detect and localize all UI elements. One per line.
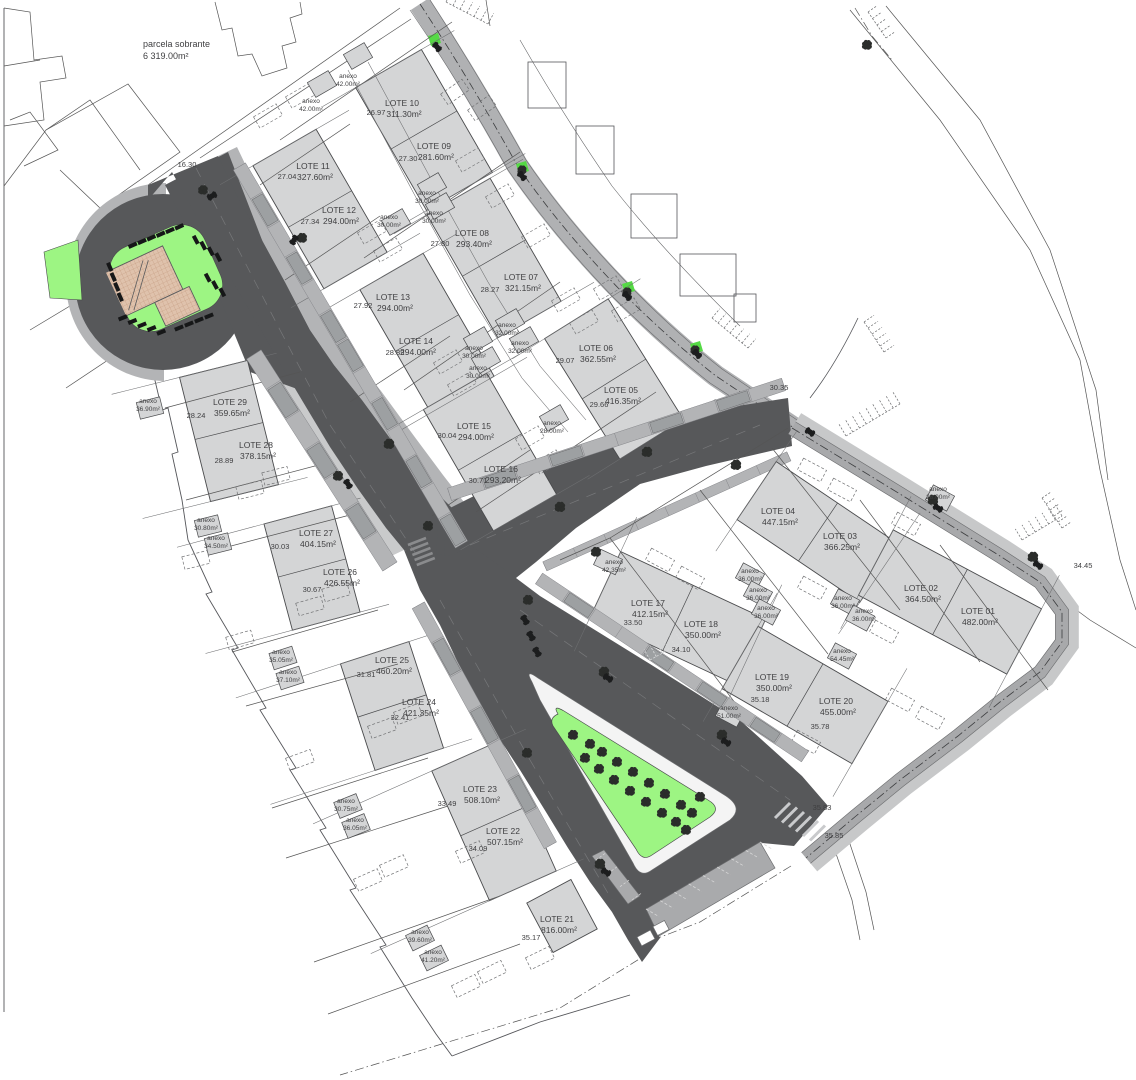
svg-text:anexo: anexo <box>749 587 767 594</box>
svg-text:anexo: anexo <box>511 340 529 347</box>
svg-text:35.83: 35.83 <box>813 803 832 812</box>
svg-text:362.55m²: 362.55m² <box>580 354 616 364</box>
svg-text:366.25m²: 366.25m² <box>824 542 860 552</box>
svg-text:34.09: 34.09 <box>469 844 488 853</box>
svg-text:42.35m²: 42.35m² <box>602 567 627 574</box>
svg-text:LOTE 04: LOTE 04 <box>761 506 795 516</box>
svg-text:anexo: anexo <box>139 398 157 405</box>
svg-text:anexo: anexo <box>339 73 357 80</box>
svg-text:anexo: anexo <box>833 648 851 655</box>
svg-text:anexo: anexo <box>272 649 290 656</box>
svg-text:LOTE 25: LOTE 25 <box>375 655 409 665</box>
svg-text:LOTE 15: LOTE 15 <box>457 421 491 431</box>
svg-text:6 319.00m²: 6 319.00m² <box>143 51 189 61</box>
svg-text:anexo: anexo <box>424 949 442 956</box>
svg-text:anexo: anexo <box>498 322 516 329</box>
svg-text:293.20m²: 293.20m² <box>485 475 521 485</box>
svg-text:31.81: 31.81 <box>357 670 376 679</box>
svg-text:parcela sobrante: parcela sobrante <box>143 39 210 49</box>
svg-text:35.05m²: 35.05m² <box>269 657 294 664</box>
svg-text:33.50: 33.50 <box>624 618 643 627</box>
svg-text:27.04: 27.04 <box>278 172 297 181</box>
svg-text:294.00m²: 294.00m² <box>400 347 436 357</box>
svg-text:36.90m²: 36.90m² <box>136 406 161 413</box>
svg-text:294.00m²: 294.00m² <box>377 303 413 313</box>
svg-text:26.97: 26.97 <box>367 108 386 117</box>
svg-text:anexo: anexo <box>543 420 561 427</box>
svg-text:anexo: anexo <box>465 345 483 352</box>
svg-text:482.00m²: 482.00m² <box>962 617 998 627</box>
svg-text:36.00m²: 36.00m² <box>831 603 856 610</box>
svg-text:36.00m²: 36.00m² <box>738 576 763 583</box>
svg-text:51.00m²: 51.00m² <box>717 713 742 720</box>
svg-text:anexo: anexo <box>741 568 759 575</box>
svg-text:36.00m²: 36.00m² <box>754 613 779 620</box>
svg-text:30.67: 30.67 <box>303 585 322 594</box>
svg-text:416.35m²: 416.35m² <box>605 396 641 406</box>
svg-text:35.18: 35.18 <box>751 695 770 704</box>
svg-text:anexo: anexo <box>720 705 738 712</box>
svg-text:anexo: anexo <box>302 98 320 105</box>
svg-text:35.17: 35.17 <box>522 933 541 942</box>
svg-text:294.00m²: 294.00m² <box>323 216 359 226</box>
svg-text:33.49: 33.49 <box>438 799 457 808</box>
svg-text:LOTE 14: LOTE 14 <box>399 336 433 346</box>
svg-text:16.30: 16.30 <box>178 160 197 169</box>
svg-text:364.50m²: 364.50m² <box>905 594 941 604</box>
svg-text:LOTE 09: LOTE 09 <box>417 141 451 151</box>
svg-text:27.80: 27.80 <box>431 239 450 248</box>
svg-text:28.89: 28.89 <box>386 348 405 357</box>
svg-text:507.15m²: 507.15m² <box>487 837 523 847</box>
svg-text:LOTE 21: LOTE 21 <box>540 914 574 924</box>
svg-text:LOTE 01: LOTE 01 <box>961 606 995 616</box>
svg-text:LOTE 29: LOTE 29 <box>213 397 247 407</box>
svg-text:LOTE 07: LOTE 07 <box>504 272 538 282</box>
svg-text:34.45: 34.45 <box>1074 561 1093 570</box>
svg-text:36.00m²: 36.00m² <box>852 616 877 623</box>
svg-text:27.34: 27.34 <box>301 217 320 226</box>
svg-text:anexo: anexo <box>834 595 852 602</box>
svg-text:327.60m²: 327.60m² <box>297 172 333 182</box>
svg-text:anexo: anexo <box>855 608 873 615</box>
svg-text:30.80m²: 30.80m² <box>194 525 219 532</box>
svg-text:anexo: anexo <box>469 365 487 372</box>
svg-text:321.15m²: 321.15m² <box>505 283 541 293</box>
svg-text:460.20m²: 460.20m² <box>376 666 412 676</box>
svg-text:508.10m²: 508.10m² <box>464 795 500 805</box>
svg-text:426.55m²: 426.55m² <box>324 578 360 588</box>
svg-text:LOTE 06: LOTE 06 <box>579 343 613 353</box>
svg-text:30.75m²: 30.75m² <box>334 806 359 813</box>
svg-text:41.20m²: 41.20m² <box>421 957 446 964</box>
svg-text:30.00m²: 30.00m² <box>377 222 402 229</box>
svg-text:35.78: 35.78 <box>811 722 830 731</box>
svg-text:LOTE 08: LOTE 08 <box>455 228 489 238</box>
svg-text:28.24: 28.24 <box>187 411 206 420</box>
svg-text:359.65m²: 359.65m² <box>214 408 250 418</box>
svg-text:35.85: 35.85 <box>825 831 844 840</box>
svg-text:anexo: anexo <box>757 605 775 612</box>
svg-text:LOTE 20: LOTE 20 <box>819 696 853 706</box>
svg-text:30.00m²: 30.00m² <box>415 198 440 205</box>
svg-text:54.45m²: 54.45m² <box>830 656 855 663</box>
svg-text:LOTE 23: LOTE 23 <box>463 784 497 794</box>
svg-text:LOTE 02: LOTE 02 <box>904 583 938 593</box>
svg-text:30.00m²: 30.00m² <box>422 218 447 225</box>
svg-text:28.00m²: 28.00m² <box>540 428 565 435</box>
svg-text:34.10: 34.10 <box>672 645 691 654</box>
svg-text:LOTE 16: LOTE 16 <box>484 464 518 474</box>
svg-text:28.89: 28.89 <box>215 456 234 465</box>
svg-text:LOTE 28: LOTE 28 <box>239 440 273 450</box>
svg-text:28.00m²: 28.00m² <box>926 494 951 501</box>
svg-text:311.30m²: 311.30m² <box>386 109 421 119</box>
svg-text:36.00m²: 36.00m² <box>746 595 771 602</box>
svg-text:293.40m²: 293.40m² <box>456 239 492 249</box>
svg-text:30.35: 30.35 <box>770 383 789 392</box>
svg-text:LOTE 17: LOTE 17 <box>631 598 665 608</box>
svg-text:anexo: anexo <box>346 817 364 824</box>
svg-text:anexo: anexo <box>207 535 225 542</box>
svg-text:LOTE 03: LOTE 03 <box>823 531 857 541</box>
svg-text:LOTE 11: LOTE 11 <box>296 161 330 171</box>
svg-text:378.15m²: 378.15m² <box>240 451 276 461</box>
svg-text:32.41: 32.41 <box>391 713 410 722</box>
svg-text:36.05m²: 36.05m² <box>343 825 368 832</box>
svg-text:350.00m²: 350.00m² <box>756 683 792 693</box>
svg-text:30.04: 30.04 <box>438 431 457 440</box>
svg-text:anexo: anexo <box>425 210 443 217</box>
svg-text:42.00m²: 42.00m² <box>336 81 361 88</box>
svg-text:LOTE 18: LOTE 18 <box>684 619 718 629</box>
svg-text:27.30: 27.30 <box>399 154 418 163</box>
svg-text:281.60m²: 281.60m² <box>418 152 454 162</box>
svg-text:anexo: anexo <box>605 559 623 566</box>
svg-text:29.66: 29.66 <box>590 400 609 409</box>
svg-text:29.07: 29.07 <box>556 356 575 365</box>
svg-text:404.15m²: 404.15m² <box>300 539 336 549</box>
svg-text:LOTE 19: LOTE 19 <box>755 672 789 682</box>
svg-text:32.00m²: 32.00m² <box>508 348 533 355</box>
svg-text:30.00m²: 30.00m² <box>466 373 491 380</box>
svg-text:30.00m²: 30.00m² <box>462 353 487 360</box>
svg-text:LOTE 26: LOTE 26 <box>323 567 357 577</box>
svg-text:LOTE 27: LOTE 27 <box>299 528 333 538</box>
svg-text:anexo: anexo <box>929 486 947 493</box>
svg-text:anexo: anexo <box>411 929 429 936</box>
svg-text:350.00m²: 350.00m² <box>685 630 721 640</box>
svg-text:anexo: anexo <box>337 798 355 805</box>
svg-text:anexo: anexo <box>418 190 436 197</box>
svg-text:816.00m²: 816.00m² <box>541 925 577 935</box>
svg-text:34.50m²: 34.50m² <box>204 543 229 550</box>
svg-text:30.03: 30.03 <box>271 542 290 551</box>
svg-text:LOTE 22: LOTE 22 <box>486 826 520 836</box>
svg-text:39.60m²: 39.60m² <box>408 937 433 944</box>
svg-text:LOTE 05: LOTE 05 <box>604 385 638 395</box>
svg-text:294.00m²: 294.00m² <box>458 432 494 442</box>
svg-text:anexo: anexo <box>197 517 215 524</box>
svg-text:30.71: 30.71 <box>469 476 488 485</box>
svg-text:455.00m²: 455.00m² <box>820 707 856 717</box>
svg-text:27.92: 27.92 <box>354 301 373 310</box>
svg-text:LOTE 13: LOTE 13 <box>376 292 410 302</box>
svg-text:42.00m²: 42.00m² <box>299 106 324 113</box>
svg-text:28.27: 28.27 <box>481 285 500 294</box>
svg-text:LOTE 24: LOTE 24 <box>402 697 436 707</box>
svg-text:anexo: anexo <box>279 669 297 676</box>
svg-text:447.15m²: 447.15m² <box>762 517 798 527</box>
svg-text:LOTE 12: LOTE 12 <box>322 205 356 215</box>
svg-text:anexo: anexo <box>380 214 398 221</box>
svg-text:37.10m²: 37.10m² <box>276 677 301 684</box>
svg-text:32.00m²: 32.00m² <box>495 330 520 337</box>
svg-text:LOTE 10: LOTE 10 <box>385 98 419 108</box>
